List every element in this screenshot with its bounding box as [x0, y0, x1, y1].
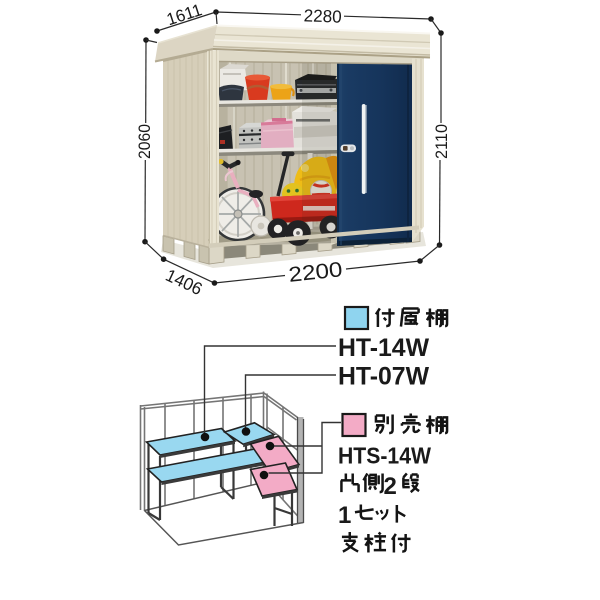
svg-text:1406: 1406: [163, 265, 206, 299]
svg-text:HTS-14W: HTS-14W: [338, 443, 432, 469]
svg-text:1611: 1611: [164, 0, 204, 29]
svg-text:2: 2: [384, 473, 397, 500]
svg-text:1: 1: [338, 502, 351, 529]
svg-text:HT-14W: HT-14W: [338, 334, 429, 362]
svg-text:2280: 2280: [303, 5, 342, 26]
svg-text:2110: 2110: [432, 124, 451, 159]
svg-text:HT-07W: HT-07W: [338, 363, 429, 391]
svg-text:2200: 2200: [287, 258, 343, 287]
svg-text:2060: 2060: [135, 124, 154, 159]
